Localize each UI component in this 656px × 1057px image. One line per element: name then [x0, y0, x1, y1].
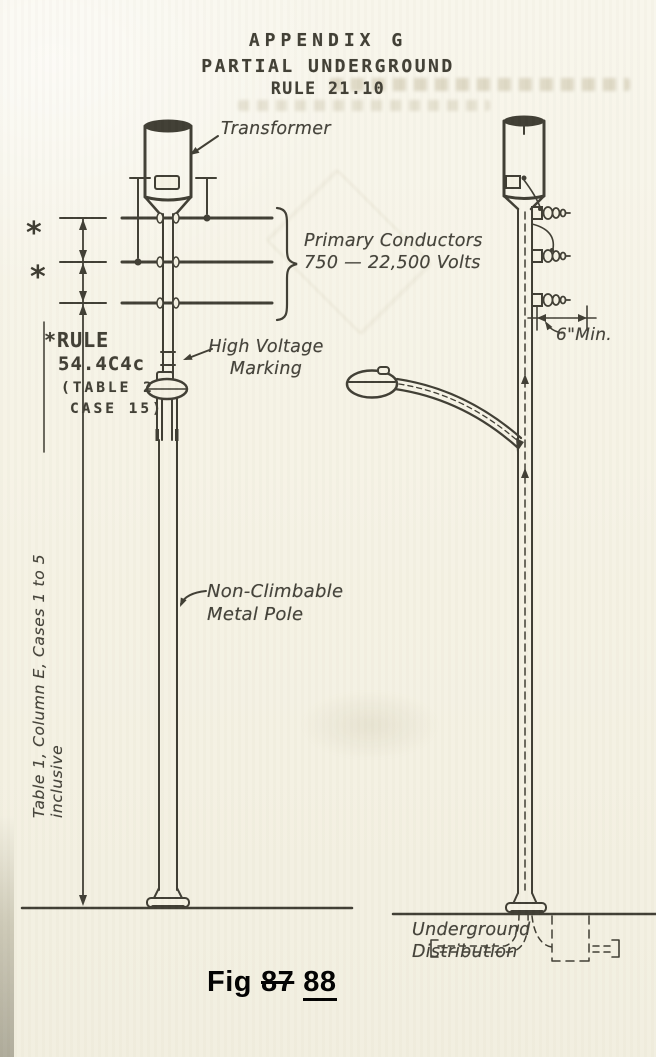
luminaire-head — [347, 367, 397, 398]
conductors-brace — [277, 208, 297, 320]
non-climbable-label: Non-Climbable Metal Pole — [207, 580, 343, 626]
figure-number-old-strikethrough: 87 — [261, 966, 294, 998]
pole-base-left — [147, 888, 189, 909]
rule-note-line3: (TABLE 2 — [61, 381, 155, 396]
pole-shaft-upper — [163, 214, 173, 374]
high-voltage-marking-label: High Voltage Marking — [206, 336, 326, 381]
pole-base-right — [506, 893, 546, 914]
six-inch-min-label: 6"Min. — [556, 325, 612, 347]
non-climbable-leader-arrow — [180, 591, 206, 607]
transformer-label: Transformer — [221, 118, 331, 140]
primary-conductors-label: Primary Conductors 750 — 22,500 Volts — [304, 230, 483, 275]
dimension-asterisk-2: * — [30, 269, 46, 287]
figure-caption-prefix: Fig — [207, 966, 252, 998]
pole-shaft-lower — [159, 440, 177, 890]
streetlight-arm — [395, 379, 524, 452]
figure-caption: Fig8788 — [207, 966, 337, 1001]
figure-number-new-underlined: 88 — [303, 969, 336, 1001]
rule-note-line2: 54.4C4c — [58, 355, 145, 374]
transformer-right — [504, 116, 545, 210]
primary-conductor-lines — [122, 213, 272, 308]
transformer-leader-arrow — [190, 136, 218, 155]
table-reference-label: Table 1, Column E, Cases 1 to 5 inclusiv… — [30, 486, 54, 818]
transformer-left — [144, 120, 192, 215]
rule-note-line4: CASE 15) — [70, 402, 164, 417]
spacing-dimension-line — [60, 218, 106, 906]
underground-distribution-label: Underground Distribution — [412, 919, 531, 964]
page-header: APPENDIX G PARTIAL UNDERGROUND RULE 21.1… — [128, 30, 528, 98]
bushing-terminals — [532, 207, 570, 306]
appendix-title: APPENDIX G — [128, 30, 528, 51]
dimension-asterisk-1: * — [26, 225, 42, 243]
scanned-document-page: APPENDIX G PARTIAL UNDERGROUND RULE 21.1… — [0, 0, 656, 1057]
left-pole-diagram — [22, 120, 352, 910]
page-title: PARTIAL UNDERGROUND — [128, 56, 528, 77]
internal-riser-dashed — [521, 212, 529, 890]
rule-number: RULE 21.10 — [128, 79, 528, 98]
rule-note-line1: *RULE — [44, 330, 109, 350]
line-art — [0, 0, 656, 1057]
